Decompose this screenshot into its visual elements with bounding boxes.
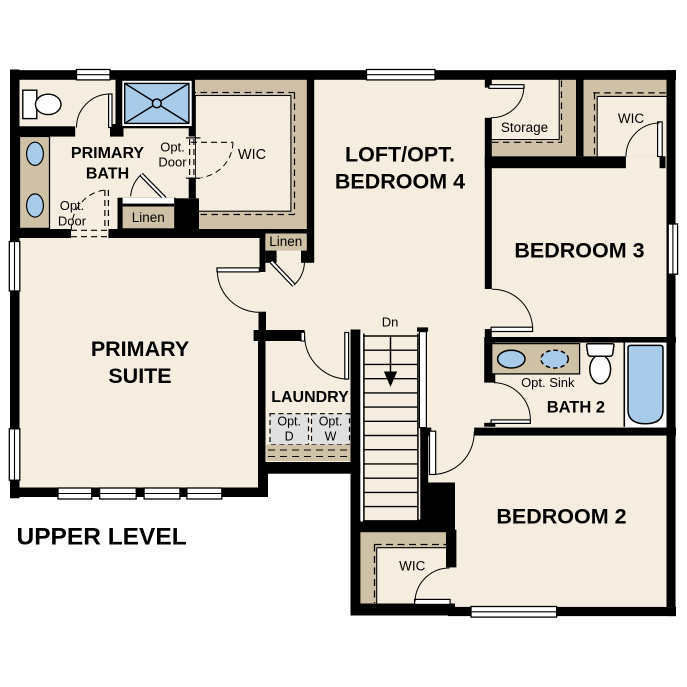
svg-text:LAUNDRY: LAUNDRY	[271, 389, 349, 406]
svg-text:Opt.: Opt.	[319, 415, 343, 429]
svg-text:WIC: WIC	[399, 559, 425, 574]
svg-text:SUITE: SUITE	[108, 364, 171, 388]
svg-text:UPPER LEVEL: UPPER LEVEL	[17, 524, 187, 551]
svg-text:Linen: Linen	[132, 210, 165, 225]
svg-text:WIC: WIC	[618, 111, 644, 126]
svg-text:WIC: WIC	[238, 147, 266, 163]
svg-text:Opt.: Opt.	[60, 198, 85, 213]
svg-text:Door: Door	[158, 155, 187, 170]
svg-text:BATH 2: BATH 2	[547, 399, 605, 417]
svg-text:BEDROOM 2: BEDROOM 2	[496, 505, 626, 529]
svg-text:Opt.: Opt.	[160, 140, 185, 155]
svg-text:Dn: Dn	[382, 315, 399, 330]
svg-text:Storage: Storage	[501, 120, 548, 135]
svg-text:Opt. Sink: Opt. Sink	[521, 375, 575, 390]
svg-text:D: D	[285, 430, 294, 444]
svg-text:LOFT/OPT.: LOFT/OPT.	[345, 142, 455, 166]
svg-text:BATH: BATH	[86, 166, 129, 183]
svg-text:W: W	[325, 430, 337, 444]
svg-text:Opt.: Opt.	[277, 415, 301, 429]
svg-text:Linen: Linen	[269, 234, 302, 249]
svg-text:Door: Door	[58, 214, 87, 229]
svg-text:PRIMARY: PRIMARY	[71, 145, 145, 162]
svg-text:BEDROOM 4: BEDROOM 4	[335, 169, 465, 193]
svg-text:BEDROOM 3: BEDROOM 3	[514, 239, 644, 263]
svg-text:PRIMARY: PRIMARY	[91, 337, 189, 361]
